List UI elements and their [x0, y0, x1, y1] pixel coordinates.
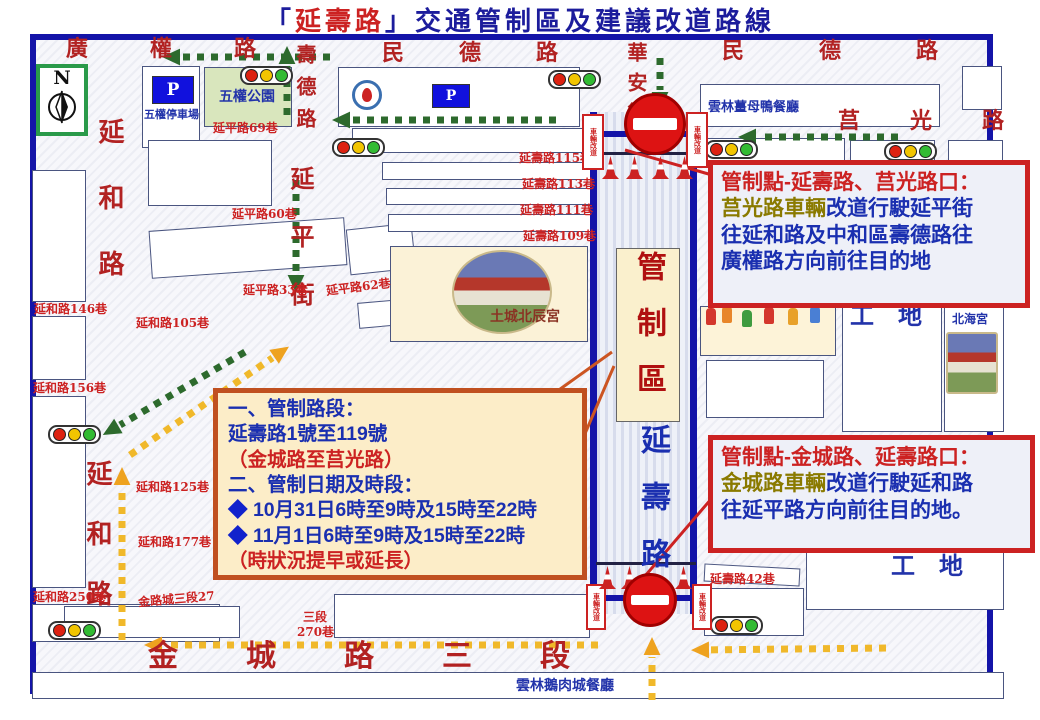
- parking-sign-icon: P: [432, 84, 470, 108]
- parking-sign-icon: P: [152, 76, 194, 104]
- detour-barricade-sign: 車輛改道: [686, 112, 708, 168]
- traffic-light-lamp: [568, 73, 581, 86]
- traffic-light-lamp: [715, 619, 728, 632]
- road-jincheng-sec3: 金城路三段: [148, 642, 638, 672]
- lane-yanping-60: 延平路60巷: [232, 208, 297, 220]
- traffic-light-icon: [548, 70, 601, 89]
- road-yanhe-lower: 延和路: [84, 460, 110, 640]
- road-shoude: 壽德路: [295, 44, 315, 140]
- road-yanping-street: 延平街: [288, 166, 312, 340]
- control-point-1-body3: 廣權路方向前往目的地: [721, 249, 1017, 275]
- traffic-light-lamp: [53, 624, 66, 637]
- yanshou-road-label: 延壽路: [630, 424, 674, 595]
- lane-270: 270巷: [297, 626, 334, 638]
- title-rest: 」交通管制區及建議改道路線: [385, 7, 775, 37]
- traffic-light-lamp: [583, 73, 596, 86]
- block: [32, 316, 86, 380]
- control-point-2-body2: 往延平路方向前往目的地。: [721, 498, 1022, 524]
- traffic-light-lamp: [245, 69, 258, 82]
- traffic-light-lamp: [730, 619, 743, 632]
- control-point-1-heading: 管制點-延壽路、莒光路口：: [721, 170, 1017, 196]
- notice-line-4: 二、管制日期及時段：: [228, 473, 572, 498]
- control-point-1-body1: 改道行駛延平街: [826, 197, 973, 220]
- control-notice-box: 一、管制路段： 延壽路1號至119號 （金城路至莒光路） 二、管制日期及時段： …: [213, 388, 587, 580]
- block: [148, 140, 272, 206]
- traffic-light-lamp: [740, 143, 753, 156]
- traffic-light-icon: [705, 140, 758, 159]
- notice-line-5: ◆ 10月31日6時至9時及15時至22時: [228, 498, 572, 523]
- control-point-2-heading: 管制點-金城路、延壽路口：: [721, 445, 1022, 471]
- diamond-bullet-icon: ◆: [228, 499, 248, 521]
- no-entry-sign-icon: [624, 93, 686, 155]
- lane-yanhe-177: 延和路177巷: [138, 536, 211, 548]
- bld-wuquan-parking: 五權停車場: [144, 109, 199, 120]
- traffic-light-lamp: [904, 145, 917, 158]
- control-point-1-body2: 往延和路及中和區壽德路往: [721, 223, 1017, 249]
- lane-sec3: 三段: [303, 611, 327, 623]
- notice-line-1: 一、管制路段：: [228, 397, 572, 422]
- compass-north-label: N: [40, 68, 84, 89]
- block: [962, 66, 1002, 110]
- parade-figure: [764, 307, 774, 324]
- parade-figure: [722, 306, 732, 323]
- detour-barricade-sign: 車輛改道: [692, 584, 712, 630]
- lane-yanhe-250: 延和路250巷: [33, 591, 106, 603]
- traffic-light-lamp: [745, 619, 758, 632]
- lane-yanhe-105: 延和路105巷: [136, 317, 209, 329]
- notice-line-2: 延壽路1號至119號: [228, 422, 572, 447]
- parade-figure: [706, 308, 716, 325]
- lane-yanping-69: 延平路69巷: [213, 122, 278, 134]
- parade-figure: [742, 310, 752, 327]
- bld-beihai-temple: 北海宮: [952, 313, 988, 325]
- control-point-1-line2: 莒光路車輛改道行駛延平街: [721, 196, 1017, 222]
- traffic-light-icon: [332, 138, 385, 157]
- title-road-name: 延壽路: [295, 7, 385, 37]
- notice-line-5-body: 10月31日6時至9時及15時至22時: [253, 499, 537, 521]
- compass: N: [36, 64, 88, 136]
- hospital-logo-flame: [362, 88, 372, 102]
- traffic-light-icon: [710, 616, 763, 635]
- control-point-2-subject: 金城路車輛: [721, 472, 826, 495]
- barricade-label: 車輛改道: [590, 128, 597, 156]
- control-zone-label-box: 管制區: [616, 248, 680, 422]
- compass-needle-icon: [45, 89, 79, 125]
- traffic-light-lamp: [260, 69, 273, 82]
- lane-yanshou-109: 延壽路109巷: [523, 230, 596, 242]
- control-point-jincheng-box: 管制點-金城路、延壽路口： 金城路車輛改道行駛延和路 往延平路方向前往目的地。: [708, 435, 1035, 553]
- page-title: 「延壽路」交通管制區及建議改道路線: [0, 1, 1040, 38]
- detour-barricade-sign: 車輛改道: [582, 114, 604, 170]
- parade-figure: [788, 308, 798, 325]
- road-juguang: 莒光路: [838, 110, 1040, 132]
- traffic-light-lamp: [710, 143, 723, 156]
- traffic-light-lamp: [337, 141, 350, 154]
- road-yanhe-upper: 延和路: [96, 118, 122, 316]
- lane-yanshou-113: 延壽路113巷: [522, 178, 595, 190]
- lane-yanhe-156: 延和路156巷: [33, 382, 106, 394]
- notice-line-6-body: 11月1日6時至9時及15時至22時: [253, 525, 525, 547]
- block: [706, 360, 824, 418]
- traffic-light-lamp: [68, 624, 81, 637]
- road-minde-center: 民德路: [382, 42, 613, 64]
- traffic-light-lamp: [919, 145, 932, 158]
- diamond-bullet-icon: ◆: [228, 525, 248, 547]
- lane-yanshou-111: 延壽路111巷: [520, 204, 593, 216]
- barricade-label: 車輛改道: [593, 593, 600, 621]
- lane-yanhe-125: 延和路125巷: [136, 481, 209, 493]
- control-point-1-subject: 莒光路車輛: [721, 197, 826, 220]
- traffic-light-lamp: [725, 143, 738, 156]
- traffic-light-lamp: [553, 73, 566, 86]
- traffic-light-icon: [884, 142, 937, 161]
- parade-figure: [810, 306, 820, 323]
- notice-line-7: （時狀況提早或延長）: [228, 549, 572, 574]
- control-zone-label: 管制區: [626, 251, 670, 419]
- bld-beichen-temple: 土城北辰宮: [490, 310, 560, 324]
- traffic-control-map: 「延壽路」交通管制區及建議改道路線 廣權路民德路民德路莒光路壽德路華安街延和路延…: [0, 0, 1040, 720]
- block: [334, 594, 590, 638]
- hospital-logo-icon: [352, 80, 382, 110]
- control-point-2-line2: 金城路車輛改道行駛延和路: [721, 471, 1022, 497]
- traffic-light-lamp: [83, 428, 96, 441]
- barricade-label: 車輛改道: [699, 593, 706, 621]
- road-edge-bar: [690, 112, 697, 614]
- traffic-light-lamp: [53, 428, 66, 441]
- notice-line-6: ◆ 11月1日6時至9時及15時至22時: [228, 524, 572, 549]
- bld-wuquan-park: 五權公園: [219, 90, 275, 104]
- traffic-light-icon: [48, 425, 101, 444]
- bld-jiangmuya-restaurant: 雲林薑母鴨餐廳: [708, 101, 799, 114]
- lane-yanping-33: 延平路33巷: [243, 284, 308, 296]
- detour-barricade-sign: 車輛改道: [586, 584, 606, 630]
- traffic-light-lamp: [275, 69, 288, 82]
- block: [32, 170, 86, 302]
- lane-yanhe-146: 延和路146巷: [34, 303, 107, 315]
- traffic-light-lamp: [889, 145, 902, 158]
- traffic-light-icon: [240, 66, 293, 85]
- control-point-juguang-box: 管制點-延壽路、莒光路口： 莒光路車輛改道行駛延平街 往延和路及中和區壽德路往 …: [708, 160, 1030, 308]
- traffic-light-lamp: [83, 624, 96, 637]
- barricade-label: 車輛改道: [694, 126, 701, 154]
- road-guangquan: 廣權路: [66, 38, 318, 60]
- site-gongdi-2: 工地: [891, 554, 987, 578]
- beihai-temple-photo: [946, 332, 998, 394]
- control-point-2-body1: 改道行駛延和路: [826, 472, 973, 495]
- block: [352, 128, 592, 153]
- traffic-light-lamp: [68, 428, 81, 441]
- traffic-light-icon: [48, 621, 101, 640]
- traffic-light-lamp: [367, 141, 380, 154]
- bld-eroucheng-restaurant: 雲林鵝肉城餐廳: [516, 679, 614, 693]
- title-bracket-open: 「: [265, 7, 295, 37]
- traffic-light-lamp: [352, 141, 365, 154]
- notice-line-3: （金城路至莒光路）: [228, 448, 572, 473]
- road-minde-right: 民德路: [722, 40, 1013, 62]
- lane-yanshou-42: 延壽路42巷: [710, 573, 775, 585]
